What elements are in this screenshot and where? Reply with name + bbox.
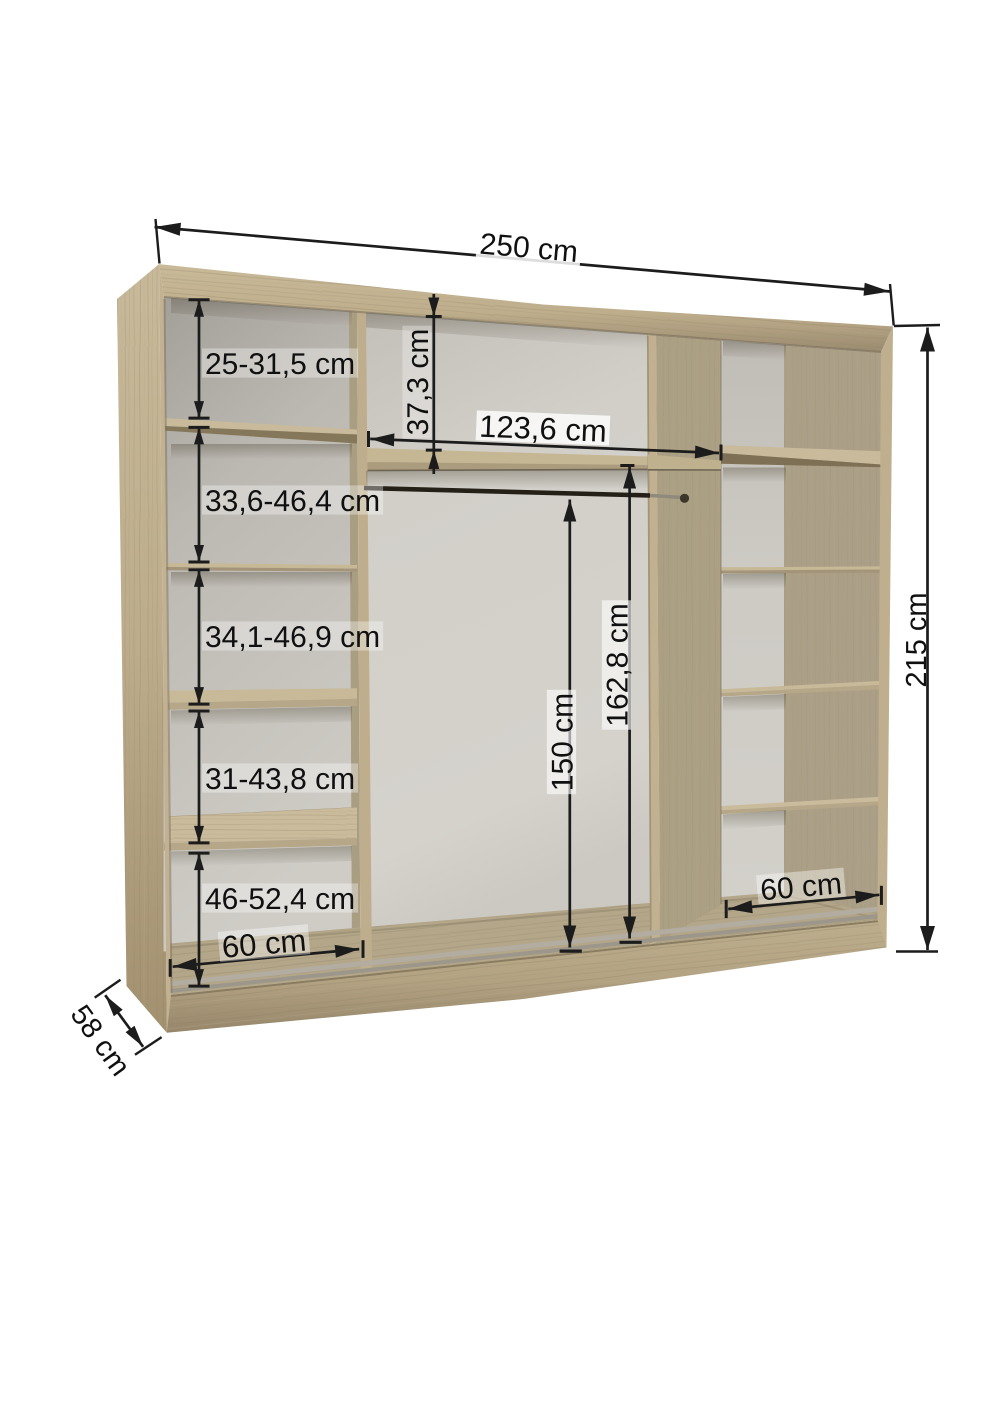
svg-text:162,8 cm: 162,8 cm (601, 603, 634, 726)
svg-text:215 cm: 215 cm (901, 592, 933, 687)
svg-text:31-43,8 cm: 31-43,8 cm (205, 763, 355, 796)
svg-text:34,1-46,9 cm: 34,1-46,9 cm (205, 621, 380, 654)
svg-text:25-31,5 cm: 25-31,5 cm (205, 348, 355, 381)
svg-text:33,6-46,4 cm: 33,6-46,4 cm (205, 485, 380, 518)
svg-text:37,3 cm: 37,3 cm (402, 329, 435, 436)
svg-text:46-52,4 cm: 46-52,4 cm (205, 883, 355, 916)
svg-text:150 cm: 150 cm (546, 693, 579, 791)
svg-text:123,6 cm: 123,6 cm (479, 409, 608, 449)
svg-text:60 cm: 60 cm (220, 923, 307, 965)
